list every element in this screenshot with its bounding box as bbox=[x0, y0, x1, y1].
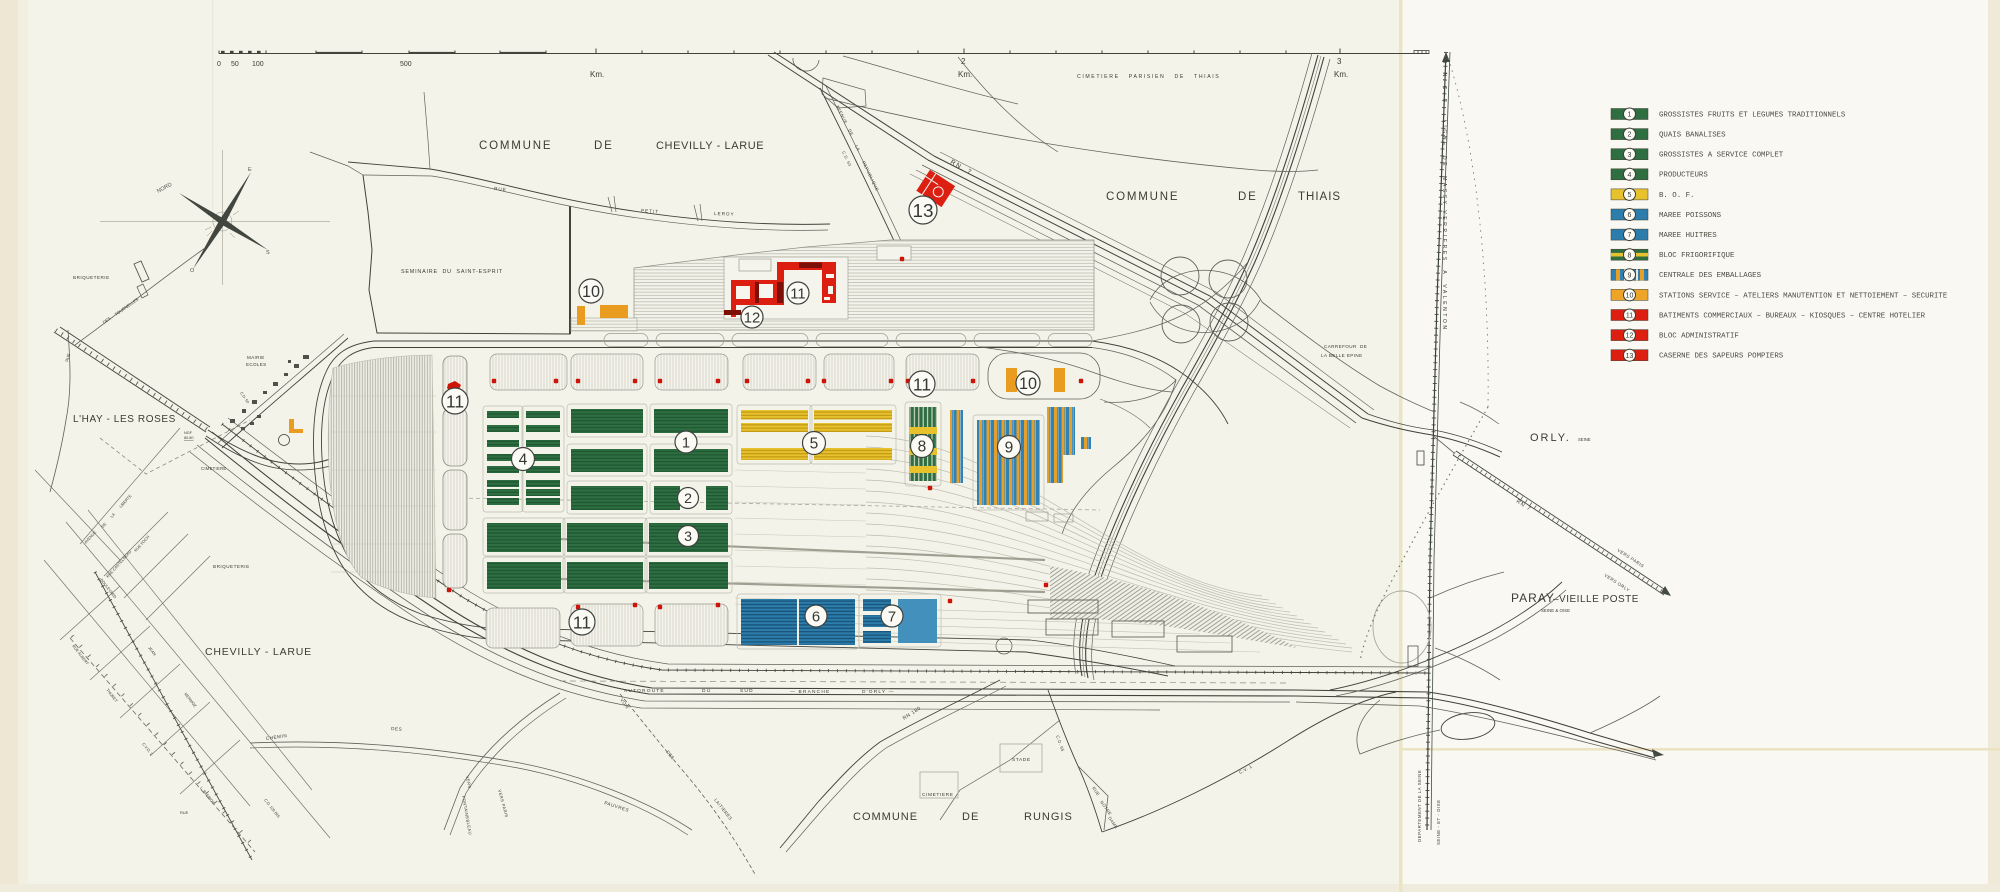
svg-text:3: 3 bbox=[1337, 57, 1342, 66]
svg-text:50: 50 bbox=[231, 61, 239, 68]
svg-text:10: 10 bbox=[1626, 293, 1634, 300]
svg-text:8: 8 bbox=[1628, 252, 1632, 259]
svg-text:DE: DE bbox=[1238, 191, 1258, 203]
svg-text:11: 11 bbox=[913, 374, 931, 394]
svg-text:PRODUCTEURS: PRODUCTEURS bbox=[1659, 172, 1708, 180]
svg-text:S: S bbox=[266, 250, 270, 256]
svg-text:S. N. C. F.: S. N. C. F. bbox=[1441, 60, 1447, 107]
svg-text:STADE: STADE bbox=[1012, 757, 1031, 763]
svg-text:THIAIS: THIAIS bbox=[1298, 191, 1341, 203]
svg-text:9: 9 bbox=[1628, 272, 1632, 279]
svg-text:STATIONS SERVICE – ATELIERS MA: STATIONS SERVICE – ATELIERS MANUTENTION … bbox=[1659, 292, 1948, 300]
svg-text:SEINE - ET - OISE: SEINE - ET - OISE bbox=[1436, 799, 1441, 845]
svg-text:GROSSISTES A SERVICE COMPLET: GROSSISTES A SERVICE COMPLET bbox=[1659, 152, 1784, 160]
svg-text:3: 3 bbox=[684, 529, 692, 545]
svg-text:RUE: RUE bbox=[180, 810, 189, 815]
svg-text:11: 11 bbox=[573, 612, 591, 632]
svg-text:Km.: Km. bbox=[1334, 70, 1348, 79]
svg-text:Km.: Km. bbox=[590, 70, 604, 79]
svg-text:B. O. F.: B. O. F. bbox=[1659, 192, 1694, 200]
svg-text:RUNGIS: RUNGIS bbox=[1024, 811, 1073, 823]
svg-text:DES: DES bbox=[391, 726, 403, 732]
svg-text:4: 4 bbox=[1628, 172, 1632, 179]
svg-text:1: 1 bbox=[1628, 112, 1632, 119]
svg-text:BLOC ADMINISTRATIF: BLOC ADMINISTRATIF bbox=[1659, 333, 1739, 341]
svg-text:CIMETIERE: CIMETIERE bbox=[922, 792, 954, 798]
svg-text:7: 7 bbox=[1628, 232, 1632, 239]
svg-text:6: 6 bbox=[1628, 212, 1632, 219]
svg-text:2: 2 bbox=[1628, 132, 1632, 139]
svg-text:CHEVILLY - LARUE: CHEVILLY - LARUE bbox=[205, 646, 312, 658]
svg-text:ORLY.: ORLY. bbox=[1530, 432, 1571, 444]
svg-text:5: 5 bbox=[810, 436, 819, 453]
svg-text:NGF: NGF bbox=[184, 431, 193, 435]
svg-text:MAREE HUITRES: MAREE HUITRES bbox=[1659, 232, 1717, 240]
svg-text:COMMUNE: COMMUNE bbox=[853, 811, 918, 823]
svg-text:BRIQUETERIE: BRIQUETERIE bbox=[73, 275, 110, 280]
svg-text:BRIQUETERIE: BRIQUETERIE bbox=[213, 564, 250, 569]
svg-text:13: 13 bbox=[912, 201, 933, 222]
svg-text:COMMUNE: COMMUNE bbox=[479, 140, 552, 152]
svg-text:L'HAY - LES ROSES: L'HAY - LES ROSES bbox=[73, 414, 176, 425]
svg-text:11: 11 bbox=[790, 286, 805, 302]
svg-text:DE: DE bbox=[962, 811, 979, 823]
svg-text:6: 6 bbox=[812, 609, 820, 625]
svg-text:500: 500 bbox=[400, 61, 412, 68]
svg-text:CHEVILLY - LARUE: CHEVILLY - LARUE bbox=[656, 140, 764, 152]
svg-text:3: 3 bbox=[1628, 152, 1632, 159]
svg-text:CASERNE DES SAPEURS POMPIERS: CASERNE DES SAPEURS POMPIERS bbox=[1659, 353, 1784, 361]
svg-text:2: 2 bbox=[684, 491, 692, 507]
svg-text:LA BELLE EPINE: LA BELLE EPINE bbox=[1321, 353, 1363, 358]
svg-text:SEINE & OISE: SEINE & OISE bbox=[1541, 608, 1570, 613]
svg-text:9: 9 bbox=[1005, 440, 1014, 457]
svg-text:CARREFOUR DE: CARREFOUR DE bbox=[1324, 344, 1367, 349]
svg-text:4: 4 bbox=[519, 452, 528, 469]
svg-text:80.80: 80.80 bbox=[184, 436, 194, 440]
svg-text:0: 0 bbox=[217, 61, 221, 68]
svg-text:COMMUNE: COMMUNE bbox=[1106, 191, 1179, 203]
svg-text:SEINE: SEINE bbox=[1578, 437, 1591, 442]
svg-text:10: 10 bbox=[1019, 375, 1037, 393]
svg-text:SEMINAIRE DU SAINT-ESPRIT: SEMINAIRE DU SAINT-ESPRIT bbox=[401, 269, 503, 275]
svg-text:MAREE POISSONS: MAREE POISSONS bbox=[1659, 212, 1722, 220]
svg-text:GROSSISTES FRUITS ET LEGUMES T: GROSSISTES FRUITS ET LEGUMES TRADITIONNE… bbox=[1659, 111, 1846, 119]
svg-text:12: 12 bbox=[1626, 333, 1634, 340]
svg-text:1: 1 bbox=[682, 435, 690, 451]
svg-text:CIMETIERE: CIMETIERE bbox=[201, 466, 227, 471]
svg-text:— BRANCHE: — BRANCHE bbox=[790, 689, 830, 695]
svg-text:MAIRIE: MAIRIE bbox=[247, 355, 265, 360]
svg-text:PARAY: PARAY bbox=[1511, 591, 1555, 605]
svg-text:8: 8 bbox=[918, 439, 927, 456]
svg-text:SUD: SUD bbox=[740, 688, 754, 694]
svg-text:CIMETIERE PARISIEN DE TH: CIMETIERE PARISIEN DE THIAIS bbox=[1077, 74, 1220, 80]
svg-text:11: 11 bbox=[1626, 313, 1633, 320]
svg-text:DE: DE bbox=[594, 140, 614, 152]
svg-text:LIGNE DE MASSY-VERRIERES A: LIGNE DE MASSY-VERRIERES A VALENTON bbox=[1441, 120, 1447, 332]
svg-text:7: 7 bbox=[888, 609, 896, 625]
svg-text:BLOC FRIGORIFIQUE: BLOC FRIGORIFIQUE bbox=[1659, 252, 1735, 260]
svg-text:CENTRALE DES EMBALLAGES: CENTRALE DES EMBALLAGES bbox=[1659, 272, 1762, 280]
svg-text:DEPARTEMENT DE LA SEINE: DEPARTEMENT DE LA SEINE bbox=[1417, 770, 1422, 842]
svg-text:ECOLES: ECOLES bbox=[246, 362, 266, 367]
svg-text:10: 10 bbox=[582, 283, 600, 301]
svg-text:13: 13 bbox=[1626, 353, 1634, 360]
svg-text:D'ORLY —: D'ORLY — bbox=[862, 689, 895, 695]
svg-text:5: 5 bbox=[1628, 192, 1632, 199]
svg-text:DU: DU bbox=[702, 688, 711, 694]
svg-text:BATIMENTS COMMERCIAUX – BUREAU: BATIMENTS COMMERCIAUX – BUREAUX – KIOSQU… bbox=[1659, 312, 1926, 320]
svg-text:LEROY: LEROY bbox=[714, 211, 735, 217]
svg-text:O: O bbox=[190, 268, 195, 274]
svg-text:12: 12 bbox=[744, 310, 761, 326]
svg-text:11: 11 bbox=[446, 391, 464, 411]
svg-text:E: E bbox=[248, 167, 252, 173]
svg-text:QUAIS BANALISES: QUAIS BANALISES bbox=[1659, 132, 1726, 140]
svg-text:AUTOROUTE: AUTOROUTE bbox=[624, 688, 665, 694]
svg-text:100: 100 bbox=[252, 61, 264, 68]
svg-text:–VIEILLE POSTE: –VIEILLE POSTE bbox=[1553, 594, 1639, 605]
